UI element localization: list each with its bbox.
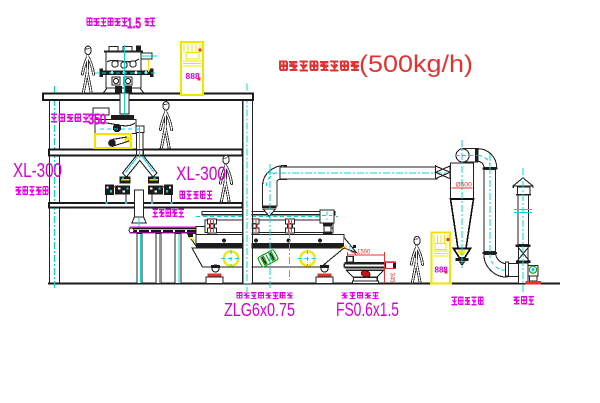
svg-text:(500kg/h): (500kg/h) [359,51,473,78]
svg-text:FS0.6x1.5: FS0.6x1.5 [336,300,399,321]
svg-text:XL-300: XL-300 [13,160,62,182]
svg-text:350: 350 [88,111,106,128]
svg-text:XL-300: XL-300 [176,164,226,185]
svg-text:ZLG6x0.75: ZLG6x0.75 [224,300,295,320]
svg-text:1.5: 1.5 [127,15,141,32]
svg-text:345: 345 [389,273,395,284]
